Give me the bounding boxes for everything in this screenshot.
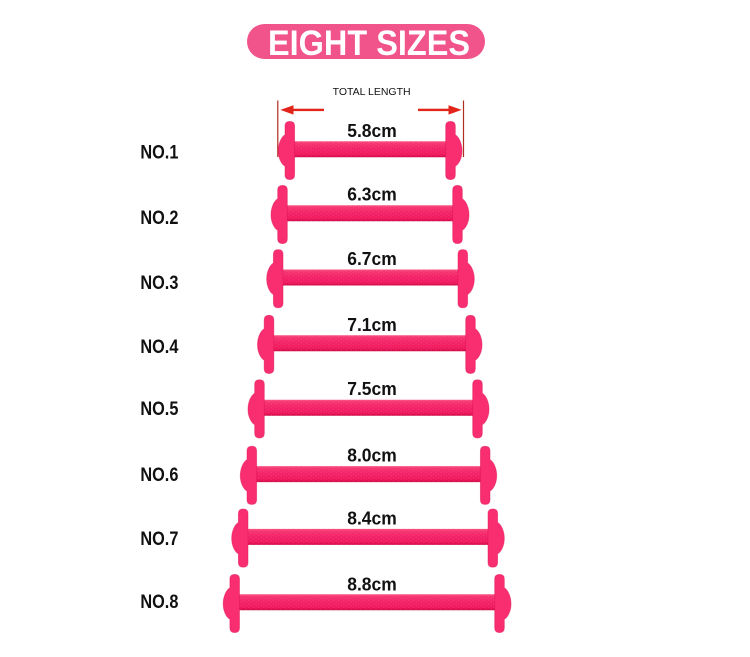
svg-text:NO.1: NO.1	[140, 142, 178, 163]
svg-text:NO.5: NO.5	[140, 399, 178, 420]
svg-text:6.3cm: 6.3cm	[347, 183, 397, 204]
svg-text:8.0cm: 8.0cm	[347, 444, 397, 465]
svg-text:NO.2: NO.2	[140, 208, 178, 229]
svg-text:TOTAL LENGTH: TOTAL LENGTH	[333, 87, 411, 98]
svg-text:5.8cm: 5.8cm	[347, 120, 397, 141]
svg-text:EIGHT SIZES: EIGHT SIZES	[268, 24, 470, 63]
svg-text:7.1cm: 7.1cm	[347, 314, 397, 335]
svg-text:6.7cm: 6.7cm	[347, 248, 397, 269]
svg-text:NO.7: NO.7	[140, 529, 178, 550]
svg-text:8.4cm: 8.4cm	[347, 508, 397, 529]
svg-text:NO.3: NO.3	[140, 273, 178, 294]
svg-text:NO.4: NO.4	[140, 337, 178, 358]
svg-text:8.8cm: 8.8cm	[347, 574, 397, 595]
svg-text:NO.8: NO.8	[140, 592, 178, 613]
svg-text:NO.6: NO.6	[140, 465, 178, 486]
svg-text:7.5cm: 7.5cm	[347, 378, 397, 399]
